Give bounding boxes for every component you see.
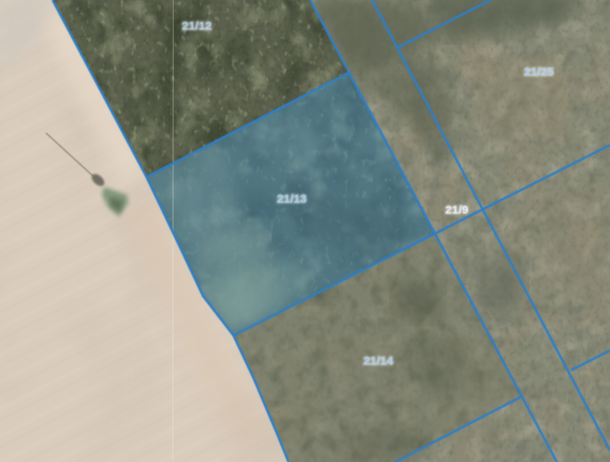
svg-text:21/13: 21/13 xyxy=(277,194,307,206)
svg-text:21/9: 21/9 xyxy=(445,205,468,217)
svg-text:21/25: 21/25 xyxy=(524,67,554,79)
svg-text:21/14: 21/14 xyxy=(364,356,394,368)
svg-text:21/12: 21/12 xyxy=(182,21,212,33)
